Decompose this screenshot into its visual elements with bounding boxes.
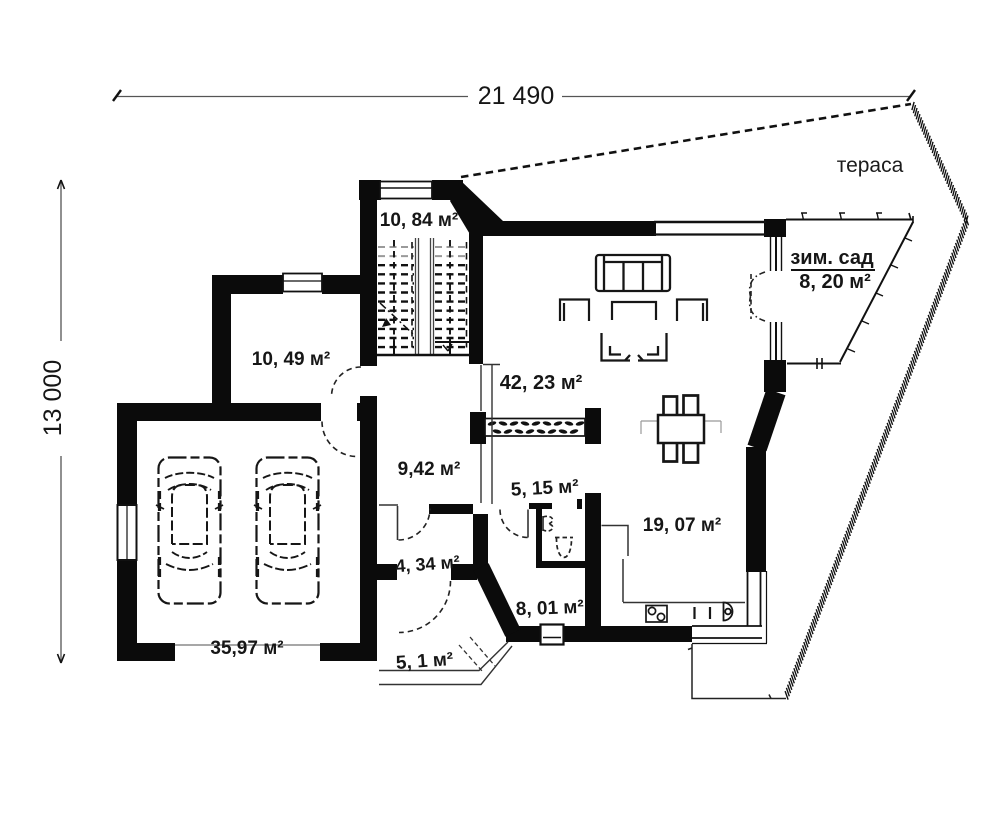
svg-text:8, 20 м²: 8, 20 м² — [799, 271, 871, 293]
svg-text:19, 07 м²: 19, 07 м² — [643, 515, 722, 536]
svg-text:5, 15 м²: 5, 15 м² — [510, 476, 579, 501]
svg-text:тераса: тераса — [837, 154, 904, 177]
svg-text:9,42 м²: 9,42 м² — [398, 459, 461, 480]
svg-text:10, 49 м²: 10, 49 м² — [252, 349, 331, 370]
svg-text:зим. сад: зим. сад — [790, 247, 874, 269]
svg-text:8, 01 м²: 8, 01 м² — [516, 597, 585, 620]
svg-text:21 490: 21 490 — [478, 82, 554, 110]
svg-text:5, 1 м²: 5, 1 м² — [395, 649, 454, 674]
svg-text:13 000: 13 000 — [39, 360, 67, 436]
svg-text:10, 84 м²: 10, 84 м² — [380, 210, 459, 231]
svg-text:35,97 м²: 35,97 м² — [210, 638, 283, 659]
svg-text:42, 23 м²: 42, 23 м² — [500, 372, 583, 394]
